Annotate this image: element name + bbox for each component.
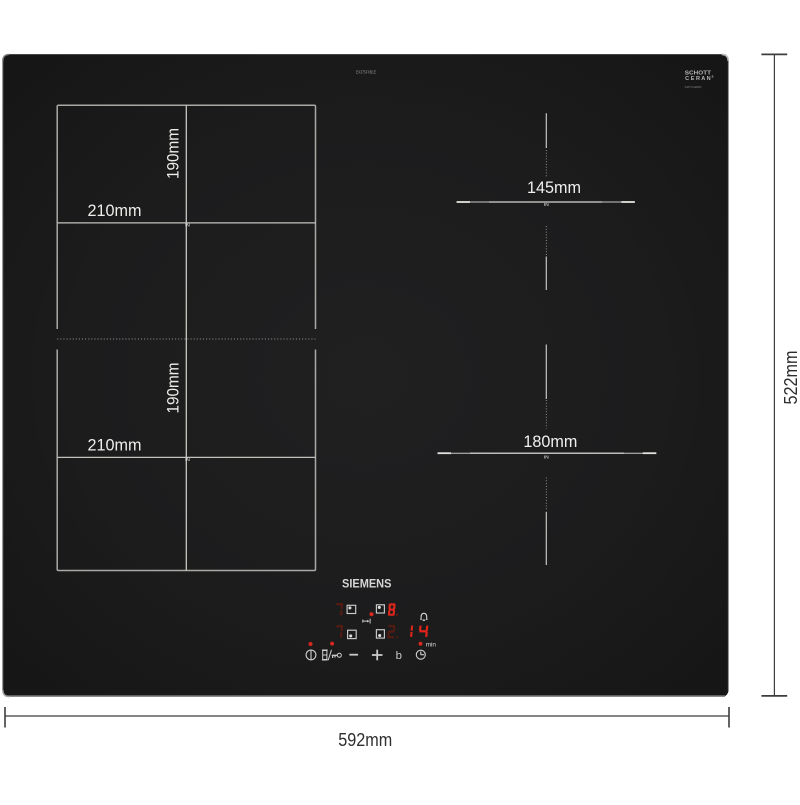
svg-text:180mm: 180mm	[523, 432, 577, 451]
svg-text:SIEMENS: SIEMENS	[342, 577, 392, 590]
svg-text:522mm: 522mm	[781, 351, 800, 405]
svg-text:210mm: 210mm	[88, 435, 142, 454]
svg-text:210mm: 210mm	[88, 201, 142, 220]
svg-text:b: b	[396, 650, 402, 662]
svg-text:min: min	[426, 641, 437, 648]
svg-text:592mm: 592mm	[338, 730, 392, 750]
svg-text:SCHOTT AG GERMANY: SCHOTT AG GERMANY	[685, 85, 702, 89]
svg-text:145mm: 145mm	[527, 178, 581, 197]
svg-text:IN: IN	[185, 222, 190, 228]
svg-text:EX375FXB1E: EX375FXB1E	[356, 69, 376, 74]
svg-text:C E R A N: C E R A N	[685, 76, 711, 82]
svg-text:IN: IN	[185, 457, 190, 463]
svg-text:190mm: 190mm	[164, 363, 183, 414]
svg-text:190mm: 190mm	[164, 128, 183, 179]
svg-text:IN: IN	[544, 454, 549, 460]
svg-text:IN: IN	[544, 202, 549, 208]
